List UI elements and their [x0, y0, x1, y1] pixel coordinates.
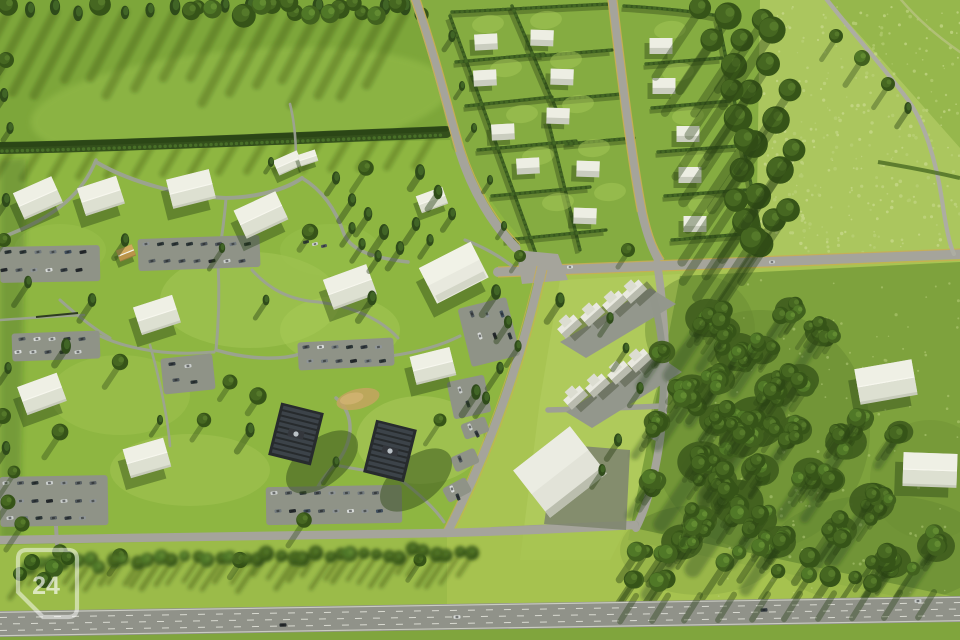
svg-text:24: 24	[32, 572, 60, 600]
